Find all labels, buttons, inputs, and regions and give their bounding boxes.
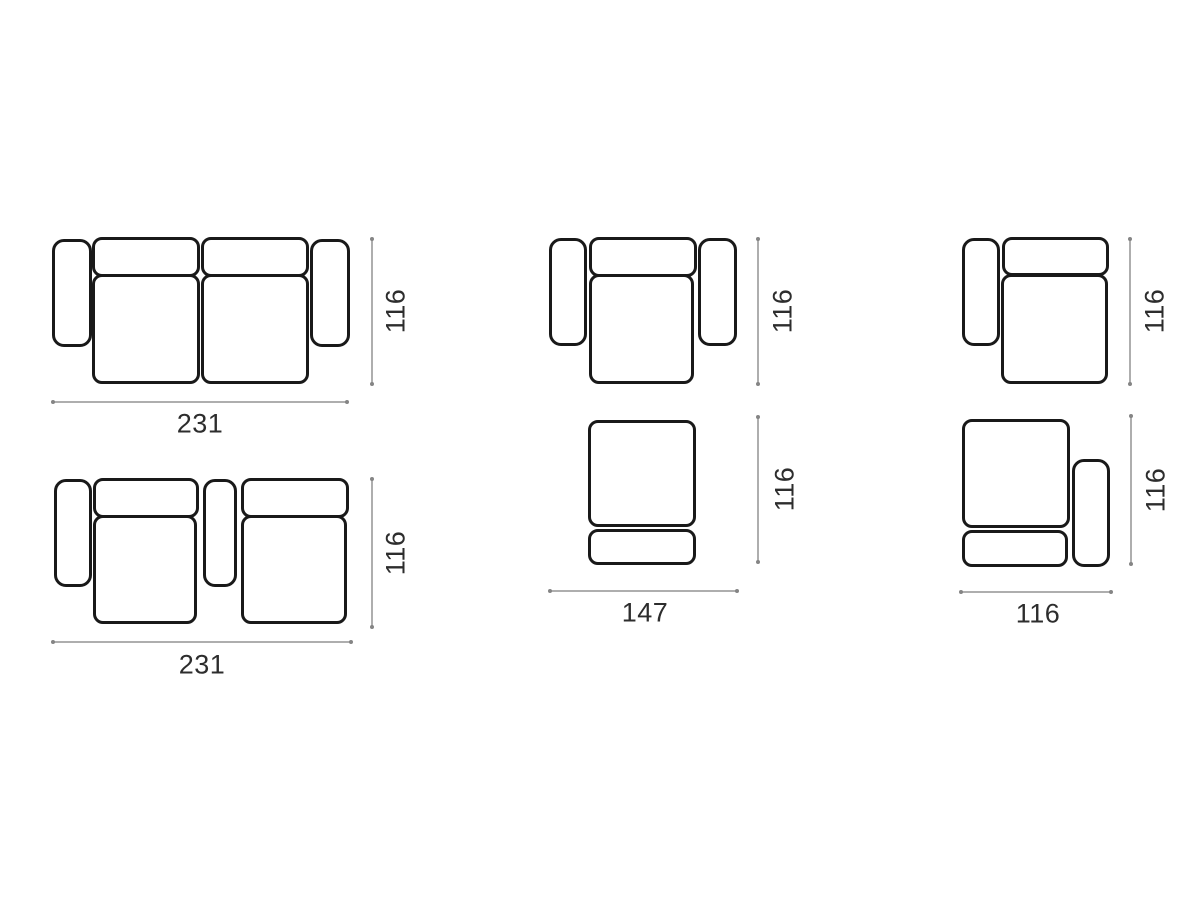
right-armrest <box>1072 459 1110 567</box>
backrest <box>589 237 697 277</box>
height-dimension-line <box>757 238 759 385</box>
height-dimension-line <box>1129 238 1131 385</box>
width-dimension-label: 147 <box>622 600 669 627</box>
left-armrest <box>52 239 92 347</box>
height-dimension-label: 116 <box>770 289 797 334</box>
width-dimension-line <box>52 641 352 643</box>
left-backrest <box>93 478 199 518</box>
width-dimension-label: 116 <box>1016 601 1061 628</box>
right-backrest <box>201 237 309 277</box>
seat <box>588 420 696 527</box>
left-armrest <box>962 238 1000 346</box>
left-backrest <box>92 237 200 277</box>
seat <box>589 274 694 384</box>
height-dimension-line <box>757 416 759 563</box>
backrest <box>962 530 1068 567</box>
height-dimension-line <box>1130 415 1132 565</box>
backrest <box>1002 237 1109 276</box>
right-armrest <box>698 238 737 346</box>
height-dimension-label: 116 <box>772 467 799 512</box>
sofa-dimension-diagram: 231 116 231 116 116 147 116 <box>0 0 1200 900</box>
height-dimension-line <box>371 238 373 385</box>
right-backrest <box>241 478 349 518</box>
right-seat <box>201 274 309 384</box>
seat <box>962 419 1070 528</box>
backrest <box>588 529 696 565</box>
center-console <box>203 479 237 587</box>
height-dimension-line <box>371 478 373 628</box>
height-dimension-label: 116 <box>1142 289 1169 334</box>
seat <box>1001 274 1108 384</box>
width-dimension-line <box>549 590 738 592</box>
width-dimension-line <box>52 401 348 403</box>
height-dimension-label: 116 <box>383 289 410 334</box>
right-seat <box>241 515 347 624</box>
height-dimension-label: 116 <box>1143 468 1170 513</box>
left-armrest <box>549 238 587 346</box>
width-dimension-label: 231 <box>177 411 224 438</box>
height-dimension-label: 116 <box>383 531 410 576</box>
right-armrest <box>310 239 350 347</box>
left-seat <box>93 515 197 624</box>
width-dimension-line <box>960 591 1112 593</box>
width-dimension-label: 231 <box>179 652 226 679</box>
left-armrest <box>54 479 92 587</box>
left-seat <box>92 274 200 384</box>
